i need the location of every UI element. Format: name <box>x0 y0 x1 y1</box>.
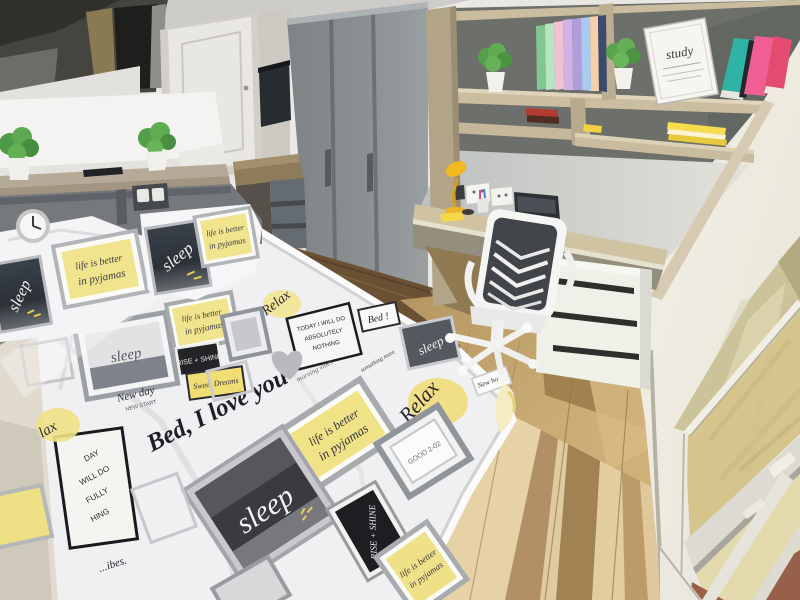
svg-text:RISE + SHINE: RISE + SHINE <box>367 504 379 560</box>
